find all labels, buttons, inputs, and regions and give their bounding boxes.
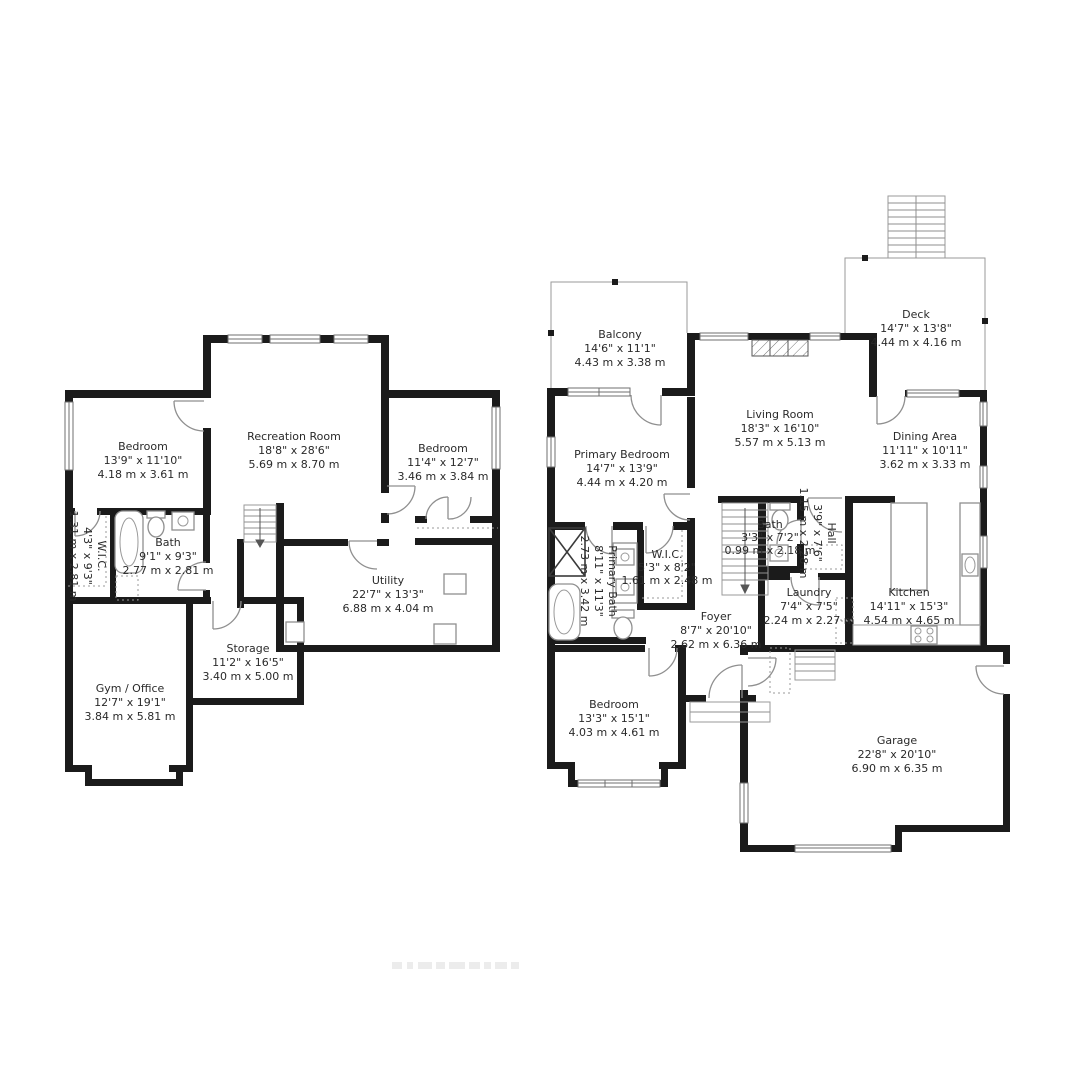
- svg-text:14'11" x 15'3": 14'11" x 15'3": [870, 600, 949, 613]
- svg-text:Primary Bath: Primary Bath: [606, 545, 619, 617]
- svg-text:Deck: Deck: [902, 308, 930, 321]
- deck-outline: [845, 196, 988, 390]
- room-label-balcony: Balcony 14'6" x 11'1" 4.43 m x 3.38 m: [575, 328, 666, 369]
- room-label-recreation-room: Recreation Room 18'8" x 28'6" 5.69 m x 8…: [247, 430, 341, 471]
- svg-text:3.46 m x 3.84 m: 3.46 m x 3.84 m: [398, 470, 489, 483]
- deck-stairs: [888, 196, 945, 258]
- room-label-bedroom-left: Bedroom 13'9" x 11'10" 4.18 m x 3.61 m: [98, 440, 189, 481]
- svg-text:3.40 m x 5.00 m: 3.40 m x 5.00 m: [203, 670, 294, 683]
- svg-text:14'6" x 11'1": 14'6" x 11'1": [584, 342, 656, 355]
- svg-text:1.31 m x 2.81 m: 1.31 m x 2.81 m: [67, 511, 80, 602]
- svg-text:4.18 m x 3.61 m: 4.18 m x 3.61 m: [98, 468, 189, 481]
- svg-text:5.69 m x 8.70 m: 5.69 m x 8.70 m: [249, 458, 340, 471]
- svg-text:Bedroom: Bedroom: [418, 442, 468, 455]
- svg-text:8'11" x 11'3": 8'11" x 11'3": [592, 545, 605, 617]
- svg-text:2.62 m x 6.36 m: 2.62 m x 6.36 m: [671, 638, 762, 651]
- svg-text:4'3" x 9'3": 4'3" x 9'3": [81, 527, 94, 585]
- room-label-bedroom-right: Bedroom 11'4" x 12'7" 3.46 m x 3.84 m: [398, 442, 489, 483]
- fireplace-icon: [752, 340, 808, 356]
- svg-text:9'1" x 9'3": 9'1" x 9'3": [139, 550, 197, 563]
- room-label-foyer: Foyer 8'7" x 20'10" 2.62 m x 6.36 m: [671, 610, 762, 651]
- room-label-wic-lower: W.I.C. 4'3" x 9'3" 1.31 m x 2.81 m: [67, 511, 108, 602]
- svg-text:6.90 m x 6.35 m: 6.90 m x 6.35 m: [852, 762, 943, 775]
- room-label-deck: Deck 14'7" x 13'8" 4.44 m x 4.16 m: [871, 308, 962, 349]
- svg-text:13'9" x 11'10": 13'9" x 11'10": [104, 454, 183, 467]
- svg-text:4.43 m x 3.38 m: 4.43 m x 3.38 m: [575, 356, 666, 369]
- stairs-lower: [244, 505, 276, 547]
- room-label-utility: Utility 22'7" x 13'3" 6.88 m x 4.04 m: [343, 574, 434, 615]
- svg-text:W.I.C.: W.I.C.: [95, 540, 108, 571]
- svg-text:12'7" x 19'1": 12'7" x 19'1": [94, 696, 166, 709]
- svg-text:Bath: Bath: [155, 536, 181, 549]
- svg-text:7'4" x 7'5": 7'4" x 7'5": [780, 600, 838, 613]
- room-label-primary-bedroom: Primary Bedroom 14'7" x 13'9" 4.44 m x 4…: [574, 448, 670, 489]
- svg-text:2.77 m x 2.81 m: 2.77 m x 2.81 m: [123, 564, 214, 577]
- svg-text:2.24 m x 2.27 m: 2.24 m x 2.27 m: [764, 614, 855, 627]
- room-label-dining-area: Dining Area 11'11" x 10'11" 3.62 m x 3.3…: [880, 430, 971, 471]
- svg-text:3.62 m x 3.33 m: 3.62 m x 3.33 m: [880, 458, 971, 471]
- watermark: [392, 962, 519, 969]
- room-label-gym-office: Gym / Office 12'7" x 19'1" 3.84 m x 5.81…: [85, 682, 176, 723]
- svg-text:Kitchen: Kitchen: [888, 586, 929, 599]
- svg-text:Garage: Garage: [877, 734, 918, 747]
- svg-text:5'3" x 8'2": 5'3" x 8'2": [638, 561, 696, 574]
- front-porch: [690, 702, 770, 722]
- floor-plan-page: Bedroom 13'9" x 11'10" 4.18 m x 3.61 m R…: [0, 0, 1080, 1080]
- svg-text:3'9" x 7'6": 3'9" x 7'6": [811, 504, 824, 562]
- svg-text:5.57 m x 5.13 m: 5.57 m x 5.13 m: [735, 436, 826, 449]
- svg-text:Dining Area: Dining Area: [893, 430, 957, 443]
- svg-text:3.84 m x 5.81 m: 3.84 m x 5.81 m: [85, 710, 176, 723]
- room-label-laundry: Laundry 7'4" x 7'5" 2.24 m x 2.27 m: [764, 586, 855, 627]
- svg-text:22'8" x 20'10": 22'8" x 20'10": [858, 748, 937, 761]
- svg-text:Hall: Hall: [825, 522, 838, 543]
- svg-text:14'7" x 13'8": 14'7" x 13'8": [880, 322, 952, 335]
- svg-text:4.03 m x 4.61 m: 4.03 m x 4.61 m: [569, 726, 660, 739]
- svg-text:Storage: Storage: [226, 642, 269, 655]
- svg-text:6.88 m x 4.04 m: 6.88 m x 4.04 m: [343, 602, 434, 615]
- svg-text:1.15 m x 2.28 m: 1.15 m x 2.28 m: [797, 488, 810, 579]
- svg-text:Living Room: Living Room: [746, 408, 814, 421]
- svg-text:18'8" x 28'6": 18'8" x 28'6": [258, 444, 330, 457]
- svg-text:Recreation Room: Recreation Room: [247, 430, 341, 443]
- svg-text:Gym / Office: Gym / Office: [96, 682, 165, 695]
- svg-text:Primary Bedroom: Primary Bedroom: [574, 448, 670, 461]
- kitchen-sink-icon: [962, 554, 978, 576]
- room-label-living-room: Living Room 18'3" x 16'10" 5.57 m x 5.13…: [735, 408, 826, 449]
- svg-text:Bath: Bath: [757, 518, 783, 531]
- room-label-garage: Garage 22'8" x 20'10" 6.90 m x 6.35 m: [852, 734, 943, 775]
- svg-text:2.73 m x 3.42 m: 2.73 m x 3.42 m: [578, 536, 591, 627]
- room-label-kitchen: Kitchen 14'11" x 15'3" 4.54 m x 4.65 m: [864, 586, 955, 627]
- room-label-hall: Hall 3'9" x 7'6" 1.15 m x 2.28 m: [797, 488, 838, 579]
- svg-text:4.54 m x 4.65 m: 4.54 m x 4.65 m: [864, 614, 955, 627]
- room-label-bedroom-bottom: Bedroom 13'3" x 15'1" 4.03 m x 4.61 m: [569, 698, 660, 739]
- svg-text:3'3" x 7'2": 3'3" x 7'2": [741, 531, 799, 544]
- svg-text:4.44 m x 4.16 m: 4.44 m x 4.16 m: [871, 336, 962, 349]
- svg-text:11'11" x 10'11": 11'11" x 10'11": [882, 444, 968, 457]
- svg-text:14'7" x 13'9": 14'7" x 13'9": [586, 462, 658, 475]
- entry-steps: [795, 650, 835, 680]
- stove-icon: [911, 626, 937, 644]
- svg-text:18'3" x 16'10": 18'3" x 16'10": [741, 422, 820, 435]
- room-label-primary-bath: Primary Bath 8'11" x 11'3" 2.73 m x 3.42…: [578, 536, 619, 627]
- sink-icon: [172, 512, 194, 530]
- svg-text:Utility: Utility: [372, 574, 405, 587]
- svg-text:11'2" x 16'5": 11'2" x 16'5": [212, 656, 284, 669]
- svg-text:8'7" x 20'10": 8'7" x 20'10": [680, 624, 752, 637]
- svg-text:13'3" x 15'1": 13'3" x 15'1": [578, 712, 650, 725]
- svg-text:1.61 m x 2.48 m: 1.61 m x 2.48 m: [622, 574, 713, 587]
- svg-text:Foyer: Foyer: [701, 610, 732, 623]
- floor-plan-canvas: Bedroom 13'9" x 11'10" 4.18 m x 3.61 m R…: [0, 0, 1080, 1080]
- svg-text:Balcony: Balcony: [598, 328, 642, 341]
- svg-text:Laundry: Laundry: [787, 586, 832, 599]
- svg-text:22'7" x 13'3": 22'7" x 13'3": [352, 588, 424, 601]
- svg-text:Bedroom: Bedroom: [589, 698, 639, 711]
- svg-text:W.I.C.: W.I.C.: [651, 548, 682, 561]
- svg-text:Bedroom: Bedroom: [118, 440, 168, 453]
- linen-closet: [116, 576, 138, 600]
- kitchen-island: [891, 503, 927, 590]
- svg-text:11'4" x 12'7": 11'4" x 12'7": [407, 456, 479, 469]
- svg-text:4.44 m x 4.20 m: 4.44 m x 4.20 m: [577, 476, 668, 489]
- toilet-icon: [147, 511, 165, 537]
